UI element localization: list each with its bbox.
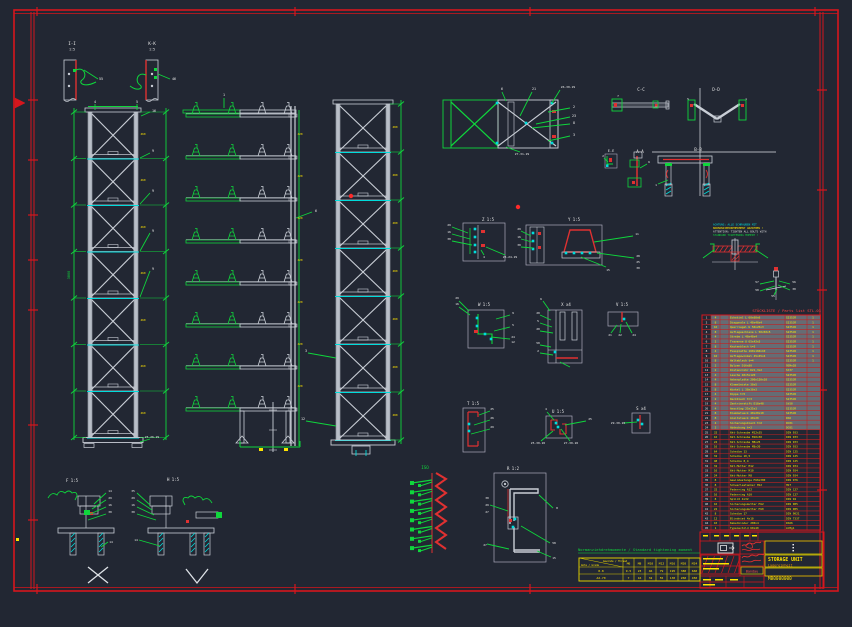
svg-text:21: 21 <box>705 411 709 415</box>
callout-label: 6 <box>501 87 503 91</box>
svg-text:S235JR: S235JR <box>786 316 796 320</box>
callout-label: 1:5 <box>149 48 155 52</box>
callout-label: S x4 <box>636 406 646 411</box>
svg-text:5: 5 <box>706 335 708 339</box>
callout-label: 480 <box>392 173 397 177</box>
svg-text:M16: M16 <box>670 562 676 566</box>
svg-text:48: 48 <box>714 459 718 463</box>
svg-text:DIN 933: DIN 933 <box>786 440 798 444</box>
svg-text:Typenschild 60x40: Typenschild 60x40 <box>730 526 759 530</box>
svg-text:380: 380 <box>681 569 687 573</box>
svg-text:Auflageschiene L 50x50x5: Auflageschiene L 50x50x5 <box>730 330 771 334</box>
callout-label: 29 <box>447 223 451 227</box>
callout-label: Z 1:5 <box>482 217 495 222</box>
callout-label: 57 <box>755 280 759 284</box>
svg-text:8.8: 8.8 <box>598 569 604 573</box>
svg-text:6: 6 <box>706 340 708 344</box>
svg-text:31: 31 <box>705 459 709 463</box>
notes-block: ACHTUNG: ALLE SCHRAUBEN MIT NORMANZIEHDR… <box>713 223 767 238</box>
callout-label: 4 <box>545 407 547 411</box>
svg-text:55: 55 <box>660 576 664 580</box>
svg-text:8: 8 <box>715 512 717 516</box>
callout-label: 6 <box>315 209 317 213</box>
svg-text:DIN 985: DIN 985 <box>786 502 798 506</box>
callout-label: X x4 <box>561 302 571 307</box>
svg-text:S235JR: S235JR <box>786 392 796 396</box>
svg-text:6kt-Schraube M8x25: 6kt-Schraube M8x25 <box>730 440 761 444</box>
svg-text:6kt-Mutter M12: 6kt-Mutter M12 <box>730 464 754 468</box>
callout-label: 26 <box>490 416 494 420</box>
svg-text:16: 16 <box>638 576 642 580</box>
callout-label: A-A <box>636 149 644 154</box>
callout-label: 28 <box>636 254 640 258</box>
callout-label: 29-30-26 <box>611 421 626 425</box>
svg-text:130: 130 <box>670 576 676 580</box>
svg-text:M6: M6 <box>627 562 631 566</box>
svg-text:450: 450 <box>692 576 698 580</box>
callout-label: 3 <box>573 133 575 137</box>
callout-label: 29 <box>490 425 494 429</box>
svg-text:S235JR: S235JR <box>786 349 796 353</box>
callout-label: 58 <box>552 541 556 545</box>
callout-label: R 1:2 <box>507 466 520 471</box>
svg-text:Scheibe 17: Scheibe 17 <box>730 512 747 516</box>
svg-text:DIN 127: DIN 127 <box>786 492 798 496</box>
callout-label: 30 <box>108 510 112 514</box>
callout-label: 2 <box>602 154 604 158</box>
svg-text:Anschlag 25x25x3: Anschlag 25x25x3 <box>730 406 757 410</box>
svg-text:Scheibe 13: Scheibe 13 <box>730 449 747 453</box>
svg-text:29: 29 <box>705 449 709 453</box>
svg-text:16: 16 <box>714 354 718 358</box>
callout-label: 460 <box>140 178 145 182</box>
svg-text:St50: St50 <box>786 402 793 406</box>
svg-text:26: 26 <box>705 435 709 439</box>
callout-label: 29 <box>108 496 112 500</box>
callout-label: 1 <box>223 93 225 97</box>
callout-label: 16 <box>455 302 459 306</box>
callout-label: 7 <box>617 94 619 98</box>
svg-text:DIN 125: DIN 125 <box>786 459 798 463</box>
callout-label: 420 <box>297 384 302 388</box>
callout-label: 20 <box>536 311 540 315</box>
svg-text:S235JR: S235JR <box>786 373 796 377</box>
callout-label: 3800 <box>67 271 71 280</box>
torque-table-title: Normanziehdrehmomente / Standard tighten… <box>578 547 692 552</box>
callout-label: 5 <box>537 319 539 323</box>
callout-label: 420 <box>297 216 302 220</box>
svg-text:St37: St37 <box>786 368 793 372</box>
callout-label: 8 <box>556 506 558 510</box>
svg-text:24: 24 <box>714 507 718 511</box>
svg-text:10: 10 <box>714 521 718 525</box>
titleblock-product-de: Lagereinheit <box>768 564 793 568</box>
svg-text:S235JR: S235JR <box>786 387 796 391</box>
svg-text:DIN 127: DIN 127 <box>786 488 798 492</box>
svg-text:Gewindestange M16x300: Gewindestange M16x300 <box>730 478 766 482</box>
svg-text:Scheibe 8,4: Scheibe 8,4 <box>730 459 749 463</box>
svg-text:23: 23 <box>705 421 709 425</box>
callout-label: T 1:5 <box>467 401 480 406</box>
svg-text:PA66: PA66 <box>786 521 793 525</box>
svg-text:10: 10 <box>705 359 709 363</box>
svg-text:Auflagewinkel 45x45x4: Auflagewinkel 45x45x4 <box>730 354 766 358</box>
callout-label: K-K <box>148 41 156 46</box>
callout-label: 9 <box>152 229 154 233</box>
callout-label: 420 <box>297 300 302 304</box>
svg-text:S235JR: S235JR <box>786 411 796 415</box>
svg-text:38: 38 <box>705 492 709 496</box>
callout-label: 460 <box>140 318 145 322</box>
callout-label: 460 <box>140 364 145 368</box>
callout-label: 1 <box>745 97 747 101</box>
svg-text:6kt-Schraube M12x35: 6kt-Schraube M12x35 <box>730 430 762 434</box>
svg-text:25: 25 <box>705 430 709 434</box>
svg-text:34: 34 <box>705 473 709 477</box>
svg-text:16: 16 <box>714 492 718 496</box>
svg-text:Abdeckung t=2: Abdeckung t=2 <box>730 426 752 430</box>
callout-label: 14 <box>134 538 138 542</box>
callout-label: 480 <box>392 221 397 225</box>
svg-text:32: 32 <box>649 576 653 580</box>
callout-label: 5 <box>687 97 689 101</box>
svg-text:M10: M10 <box>648 562 654 566</box>
svg-text:39: 39 <box>705 497 709 501</box>
callout-label: 27-31-29 <box>515 152 530 156</box>
callout-label: 15 <box>552 556 556 560</box>
callout-label: 6 <box>648 160 650 164</box>
callout-label: 24 <box>632 333 636 337</box>
callout-label: 460 <box>140 225 145 229</box>
callout-label: 35 <box>131 489 135 493</box>
svg-text:HST: HST <box>786 483 791 487</box>
svg-text:44: 44 <box>705 521 709 525</box>
callout-label: 14 <box>108 489 112 493</box>
svg-text:32: 32 <box>714 488 718 492</box>
svg-text:24: 24 <box>714 440 718 444</box>
svg-text:42: 42 <box>705 512 709 516</box>
callout-label: 1:5 <box>69 48 75 52</box>
callout-label: 46 <box>172 77 176 81</box>
svg-text:24: 24 <box>705 426 709 430</box>
callout-label: 16 <box>131 503 135 507</box>
callout-label: 25 <box>636 260 640 264</box>
callout-label: 3 <box>305 349 307 353</box>
svg-text:M8: M8 <box>638 562 642 566</box>
callout-label: 26-30-29 <box>561 85 576 89</box>
svg-text:Federring A12: Federring A12 <box>730 488 752 492</box>
callout-label: D-D <box>712 87 720 92</box>
svg-text:7: 7 <box>628 576 630 580</box>
svg-text:43: 43 <box>705 516 709 520</box>
svg-text:S235JR: S235JR <box>786 325 796 329</box>
callout-label: 20 <box>536 327 540 331</box>
svg-text:DIN 934: DIN 934 <box>786 469 798 473</box>
callout-label: C-C <box>637 87 645 92</box>
svg-text:64: 64 <box>714 449 718 453</box>
svg-text:19: 19 <box>705 402 709 406</box>
svg-text:32: 32 <box>714 454 718 458</box>
callout-label: 2 <box>573 105 575 109</box>
callout-label: ISO <box>421 465 429 470</box>
svg-text:8: 8 <box>706 349 708 353</box>
callout-label: 14 <box>109 540 113 544</box>
svg-text:35: 35 <box>705 478 709 482</box>
svg-text:40: 40 <box>705 502 709 506</box>
svg-text:3: 3 <box>706 325 708 329</box>
callout-label: 30 <box>131 510 135 514</box>
callout-label: 25-24-29 <box>503 255 518 259</box>
callout-label: 30 <box>792 287 796 291</box>
svg-text:32: 32 <box>705 464 709 468</box>
callout-label: E-E <box>608 149 615 153</box>
callout-label: 5 <box>136 100 138 104</box>
callout-label: 16 <box>517 235 521 239</box>
callout-label: 480 <box>392 413 397 417</box>
callout-label: 460 <box>140 411 145 415</box>
titleblock-product: STORAGE UNIT <box>768 557 803 563</box>
svg-text:6kt-Mutter M10: 6kt-Mutter M10 <box>730 469 754 473</box>
svg-text:Diagonale L 40x40x4: Diagonale L 40x40x4 <box>730 320 762 324</box>
svg-text:Bolzen D16x80: Bolzen D16x80 <box>730 363 752 367</box>
svg-text:Klemmleiste 30x5: Klemmleiste 30x5 <box>730 383 757 387</box>
svg-text:22: 22 <box>705 416 709 420</box>
titleblock-drawing-number: MB0000000 <box>768 576 792 582</box>
callout-label: 4 <box>94 100 96 104</box>
svg-text:33: 33 <box>705 469 709 473</box>
callout-label: 29 <box>455 296 459 300</box>
svg-text:16: 16 <box>714 445 718 449</box>
svg-text:S235JR: S235JR <box>786 344 796 348</box>
parts-list-title: STÜCKLISTE / Parts list STL-01 <box>752 308 821 313</box>
svg-text:37: 37 <box>705 488 709 492</box>
svg-text:Eckstiel L 60x60x6: Eckstiel L 60x60x6 <box>730 316 761 320</box>
callout-label: 460 <box>140 271 145 275</box>
callout-label: 16 <box>108 503 112 507</box>
callout-label: 4 <box>483 255 485 259</box>
svg-text:8: 8 <box>715 497 717 501</box>
callout-label: 30 <box>447 237 451 241</box>
callout-label: 55 <box>771 294 775 298</box>
svg-text:A2-70: A2-70 <box>596 576 605 580</box>
svg-text:260: 260 <box>681 576 687 580</box>
svg-text:15: 15 <box>705 383 709 387</box>
svg-text:4: 4 <box>706 330 708 334</box>
svg-text:S235JR: S235JR <box>786 378 796 382</box>
callout-label: 16 <box>152 109 156 113</box>
svg-text:9SMn28: 9SMn28 <box>786 363 796 367</box>
callout-label: 30 <box>485 496 489 500</box>
svg-text:Scheibe 10,5: Scheibe 10,5 <box>730 454 751 458</box>
svg-text:2: 2 <box>706 320 708 324</box>
callout-label: 27 <box>485 510 489 514</box>
svg-text:195: 195 <box>670 569 676 573</box>
svg-text:24: 24 <box>714 473 718 477</box>
callout-label: 9 <box>152 189 154 193</box>
svg-text:DC01: DC01 <box>786 426 793 430</box>
callout-label: 420 <box>297 342 302 346</box>
svg-text:8: 8 <box>715 483 717 487</box>
callout-label: 6 <box>540 297 542 301</box>
callout-label: 420 <box>297 132 302 136</box>
svg-text:Klemmstueck 40x20x10: Klemmstueck 40x20x10 <box>730 411 764 415</box>
callout-label: 50 <box>536 341 540 345</box>
drawing-sheet[interactable]: 14Eckstiel L 60x60x6S235JR128Diagonale L… <box>0 0 852 627</box>
svg-text:Federring A10: Federring A10 <box>730 492 752 496</box>
svg-text:Zentrierstift D10x40: Zentrierstift D10x40 <box>730 402 764 406</box>
callout-label: 25-30-26 <box>531 441 546 445</box>
parts-list: STÜCKLISTE / Parts list STL-01 48Auflage… <box>702 308 822 530</box>
svg-text:30: 30 <box>705 454 709 458</box>
callout-label: 11 <box>635 232 639 236</box>
svg-text:79: 79 <box>660 569 664 573</box>
callout-label: 29 <box>131 496 135 500</box>
callout-label: B-B <box>694 147 702 152</box>
svg-text:S235JR: S235JR <box>786 359 796 363</box>
svg-text:14: 14 <box>705 378 709 382</box>
svg-text:Strebe L 40x40x4: Strebe L 40x40x4 <box>730 335 757 339</box>
callout-label: 460 <box>140 132 145 136</box>
svg-text:41: 41 <box>705 507 709 511</box>
svg-text:12: 12 <box>714 516 718 520</box>
svg-text:32: 32 <box>714 430 718 434</box>
callout-label: 9 <box>152 149 154 153</box>
callout-label: F 1:5 <box>66 478 79 483</box>
callout-label: 12 <box>301 417 305 421</box>
svg-text:Blindniet 4x10: Blindniet 4x10 <box>730 516 754 520</box>
svg-text:6kt-Schraube M8x20: 6kt-Schraube M8x20 <box>730 445 761 449</box>
titleblock-approved-name: Bandau <box>746 570 758 574</box>
svg-text:S235JR: S235JR <box>786 330 796 334</box>
svg-text:M20: M20 <box>681 562 687 566</box>
svg-text:DIN 9021: DIN 9021 <box>786 512 800 516</box>
callout-label: 9 <box>512 311 514 315</box>
callout-label: 12 <box>511 340 515 344</box>
callout-label: 420 <box>297 174 302 178</box>
svg-text:DIN 933: DIN 933 <box>786 435 798 439</box>
callout-label: 8 <box>573 121 575 125</box>
callout-label: 30 <box>636 266 640 270</box>
svg-text:9.5: 9.5 <box>626 569 632 573</box>
svg-text:S235JR: S235JR <box>786 320 796 324</box>
svg-text:DIN 985: DIN 985 <box>786 507 798 511</box>
callout-label: 16 <box>447 230 451 234</box>
svg-text:M12: M12 <box>659 562 665 566</box>
svg-text:Fussplatte 160x160x10: Fussplatte 160x160x10 <box>730 349 766 353</box>
callout-label: V 1:5 <box>616 302 629 307</box>
callout-label: 29 <box>485 503 489 507</box>
callout-label: 30 <box>517 243 521 247</box>
svg-text:17: 17 <box>705 392 709 396</box>
callout-label: 56 <box>792 280 796 284</box>
callout-label: 480 <box>392 269 397 273</box>
svg-text:36: 36 <box>705 483 709 487</box>
svg-text:Sicherungsmutter M10: Sicherungsmutter M10 <box>730 507 764 511</box>
callout-label: 2 <box>537 349 539 353</box>
svg-text:Knotenblech t=5: Knotenblech t=5 <box>730 344 756 348</box>
svg-text:Lasche 40x5x120: Lasche 40x5x120 <box>730 373 756 377</box>
svg-text:Traverse U 65x42x5: Traverse U 65x42x5 <box>730 340 761 344</box>
note-line-4: STANDARD TIGHTENING MOMENT ! <box>713 233 758 237</box>
svg-text:20: 20 <box>705 406 709 410</box>
callout-label: U 1:5 <box>552 409 565 414</box>
callout-label: I-I <box>68 41 76 46</box>
callout-label: 480 <box>392 365 397 369</box>
svg-text:DIN 934: DIN 934 <box>786 473 798 477</box>
callout-label: 21 <box>608 333 612 337</box>
svg-text:Kabelbinder 200x4: Kabelbinder 200x4 <box>730 521 759 525</box>
svg-text:18: 18 <box>705 397 709 401</box>
callout-label: 25 <box>588 417 592 421</box>
callout-label: 25 <box>490 407 494 411</box>
svg-text:16: 16 <box>705 387 709 391</box>
svg-text:PA6: PA6 <box>786 416 791 420</box>
svg-text:M24: M24 <box>692 562 698 566</box>
callout-label: 29 <box>517 227 521 231</box>
callout-label: 55 <box>99 77 103 81</box>
svg-text:S235JR: S235JR <box>786 406 796 410</box>
callout-label: 25-26-29 <box>145 435 160 439</box>
callout-label: 480 <box>392 125 397 129</box>
svg-text:27: 27 <box>705 440 709 444</box>
svg-text:Sicherungsblech t=2: Sicherungsblech t=2 <box>730 421 762 425</box>
svg-text:DIN 125: DIN 125 <box>786 449 798 453</box>
callout-label: 1 <box>655 183 657 187</box>
svg-text:23: 23 <box>638 569 642 573</box>
callout-label: Y 1:5 <box>568 217 581 222</box>
svg-text:Querriegel U 50x25x3: Querriegel U 50x25x3 <box>730 325 764 329</box>
callout-label: 50 <box>755 288 759 292</box>
cad-drawing-canvas: 14Eckstiel L 60x60x6S235JR128Diagonale L… <box>0 0 852 627</box>
svg-text:DIN 933: DIN 933 <box>786 445 798 449</box>
svg-text:12: 12 <box>705 368 709 372</box>
callout-label: 420 <box>297 258 302 262</box>
svg-text:Winkel L 30x30x3: Winkel L 30x30x3 <box>730 387 757 391</box>
svg-text:S235JR: S235JR <box>786 383 796 387</box>
svg-text:16: 16 <box>714 469 718 473</box>
svg-text:Gleitstueck 40x20: Gleitstueck 40x20 <box>730 416 759 420</box>
svg-text:1: 1 <box>715 526 717 530</box>
svg-text:660: 660 <box>692 569 698 573</box>
svg-text:DIN 934: DIN 934 <box>786 464 798 468</box>
svg-text:Sicherungsmutter M12: Sicherungsmutter M12 <box>730 502 764 506</box>
callout-label: 9 <box>152 267 154 271</box>
svg-text:DIN 94: DIN 94 <box>786 497 796 501</box>
svg-text:DIN 125: DIN 125 <box>786 454 798 458</box>
svg-text:S235JR: S235JR <box>786 397 796 401</box>
svg-text:8: 8 <box>715 478 717 482</box>
svg-text:Halteblech t=4: Halteblech t=4 <box>730 359 754 363</box>
torque-table-grid: Gewinde / ThreadGüte / GradeM6M8M10M12M1… <box>578 553 700 581</box>
torque-table: Normanziehdrehmomente / Standard tighten… <box>578 547 700 581</box>
svg-text:Splint 4x32: Splint 4x32 <box>730 497 749 501</box>
svg-text:16: 16 <box>714 435 718 439</box>
svg-text:Güte / Grade: Güte / Grade <box>581 563 600 567</box>
svg-text:S235JR: S235JR <box>786 354 796 358</box>
svg-text:Gewinde / Thread: Gewinde / Thread <box>603 559 628 563</box>
callout-label: 23 <box>572 114 576 118</box>
callout-label: 22 <box>618 333 622 337</box>
svg-text:13: 13 <box>705 373 709 377</box>
svg-text:6kt-Schraube M10x30: 6kt-Schraube M10x30 <box>730 435 762 439</box>
svg-text:45: 45 <box>705 526 709 530</box>
svg-text:16: 16 <box>714 502 718 506</box>
callout-label: 5 <box>512 323 514 327</box>
svg-text:46: 46 <box>649 569 653 573</box>
svg-text:1: 1 <box>706 316 708 320</box>
svg-text:AlMg1: AlMg1 <box>786 526 795 530</box>
svg-text:DIN 933: DIN 933 <box>786 430 798 434</box>
